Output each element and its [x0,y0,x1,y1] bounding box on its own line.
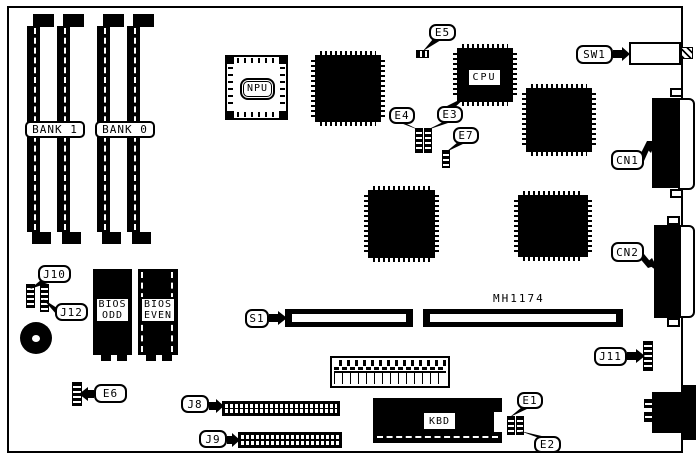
s1-callout: S1 [245,309,269,328]
e5-callout-text: E5 [435,26,450,39]
sw1-callout: SW1 [576,45,613,64]
e5-callout: E5 [429,24,456,41]
bank1-label: BANK 1 [25,121,85,138]
sw1-callout-text: SW1 [583,48,606,61]
s1-callout-text: S1 [249,312,264,325]
bank0-label-text: BANK 0 [102,123,148,136]
j12-callout: J12 [55,303,88,321]
e7-callout: E7 [453,127,479,144]
cn2-callout-text: CN2 [616,246,639,259]
j8-callout: J8 [181,395,209,413]
j9-callout-text: J9 [205,433,220,446]
motherboard-diagram: BANK 1 BANK 0 BIOS ODD BIOS EVEN [0,0,700,463]
e4-callout-text: E4 [394,109,409,122]
j12-callout-text: J12 [60,306,83,319]
cn1-callout-text: CN1 [616,154,639,167]
e2-callout-text: E2 [540,438,555,451]
j11-callout: J11 [594,347,627,366]
j8-callout-text: J8 [187,398,202,411]
e6-callout: E6 [94,384,127,403]
e7-callout-text: E7 [458,129,473,142]
j10-callout: J10 [38,265,71,283]
e3-callout-text: E3 [442,108,457,121]
e4-callout: E4 [389,107,415,124]
j9-callout: J9 [199,430,227,448]
e2-callout: E2 [534,436,561,453]
e1-callout: E1 [517,392,543,409]
e6-callout-text: E6 [103,387,118,400]
e1-callout-text: E1 [522,394,537,407]
bank1-label-text: BANK 1 [32,123,78,136]
bank0-label: BANK 0 [95,121,155,138]
j11-callout-text: J11 [599,350,622,363]
cn2-callout: CN2 [611,242,644,262]
j10-callout-text: J10 [43,268,66,281]
cn1-callout: CN1 [611,150,644,170]
e3-callout: E3 [437,106,463,123]
